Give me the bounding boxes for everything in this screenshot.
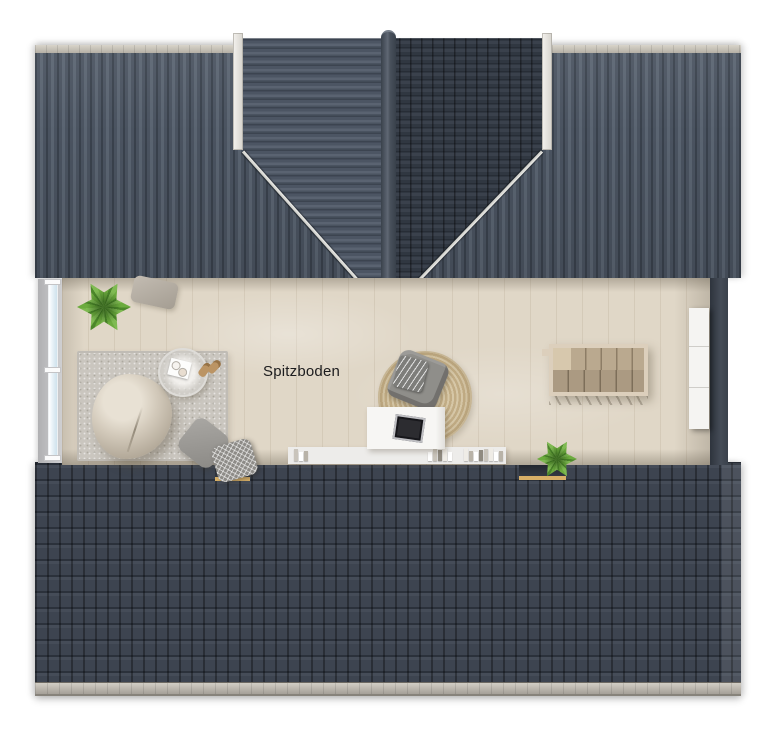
- book-stack: [484, 448, 503, 461]
- gable-trim-left: [233, 33, 243, 150]
- gable-roof-right-slope: [388, 38, 542, 279]
- window-handle-top: [44, 279, 61, 285]
- main-roof-lower: [35, 462, 741, 696]
- attic-floor: Spitzboden: [35, 278, 728, 465]
- book: [494, 452, 498, 461]
- book-stack: [464, 448, 483, 461]
- staircase-opening: [549, 344, 648, 396]
- storage-cabinet: [689, 308, 709, 429]
- book: [438, 450, 442, 461]
- book: [484, 449, 488, 461]
- gable-end-window-band: [38, 279, 62, 463]
- gable-roof-left-slope: [243, 38, 388, 279]
- stair-railing-shadow: [549, 396, 648, 405]
- desk: [367, 407, 445, 449]
- interior-wall-right: [710, 278, 728, 465]
- floorplan-attic: Spitzboden: [0, 0, 775, 731]
- gable-trim-right: [542, 33, 552, 150]
- low-shelf: [288, 447, 506, 464]
- stair-steps-lower: [553, 370, 644, 392]
- book: [448, 452, 452, 461]
- window-handle-bottom: [44, 455, 61, 461]
- slipper: [206, 358, 222, 374]
- cabinet-section: [689, 388, 709, 429]
- room-label: Spitzboden: [263, 363, 340, 380]
- book: [443, 448, 447, 461]
- main-roof-upper: [35, 45, 741, 278]
- laptop-tray: [392, 414, 425, 443]
- cup: [177, 367, 188, 378]
- tile-roof-surface: [35, 463, 741, 685]
- book: [433, 449, 437, 461]
- ridge-cap: [381, 30, 396, 280]
- book-stack: [428, 448, 452, 461]
- book: [304, 451, 308, 461]
- book: [479, 450, 483, 461]
- book: [464, 448, 468, 461]
- stair-steps-upper: [571, 348, 644, 370]
- book: [428, 452, 432, 461]
- book: [489, 448, 493, 461]
- stair-entry-notch: [542, 349, 552, 356]
- book: [294, 449, 298, 461]
- cabinet-section: [689, 308, 709, 347]
- book-stack: [294, 449, 308, 461]
- book: [474, 452, 478, 461]
- book: [299, 452, 303, 461]
- window-handle-middle: [44, 367, 61, 373]
- cross-gable-dormer: [233, 33, 552, 278]
- book: [499, 451, 503, 461]
- tray: [167, 358, 191, 380]
- beanbag-fold: [126, 407, 142, 452]
- book: [469, 451, 473, 461]
- gutter: [35, 682, 741, 696]
- cabinet-section: [689, 347, 709, 388]
- stair-landing: [553, 348, 571, 370]
- roof-light-edge: [722, 463, 741, 685]
